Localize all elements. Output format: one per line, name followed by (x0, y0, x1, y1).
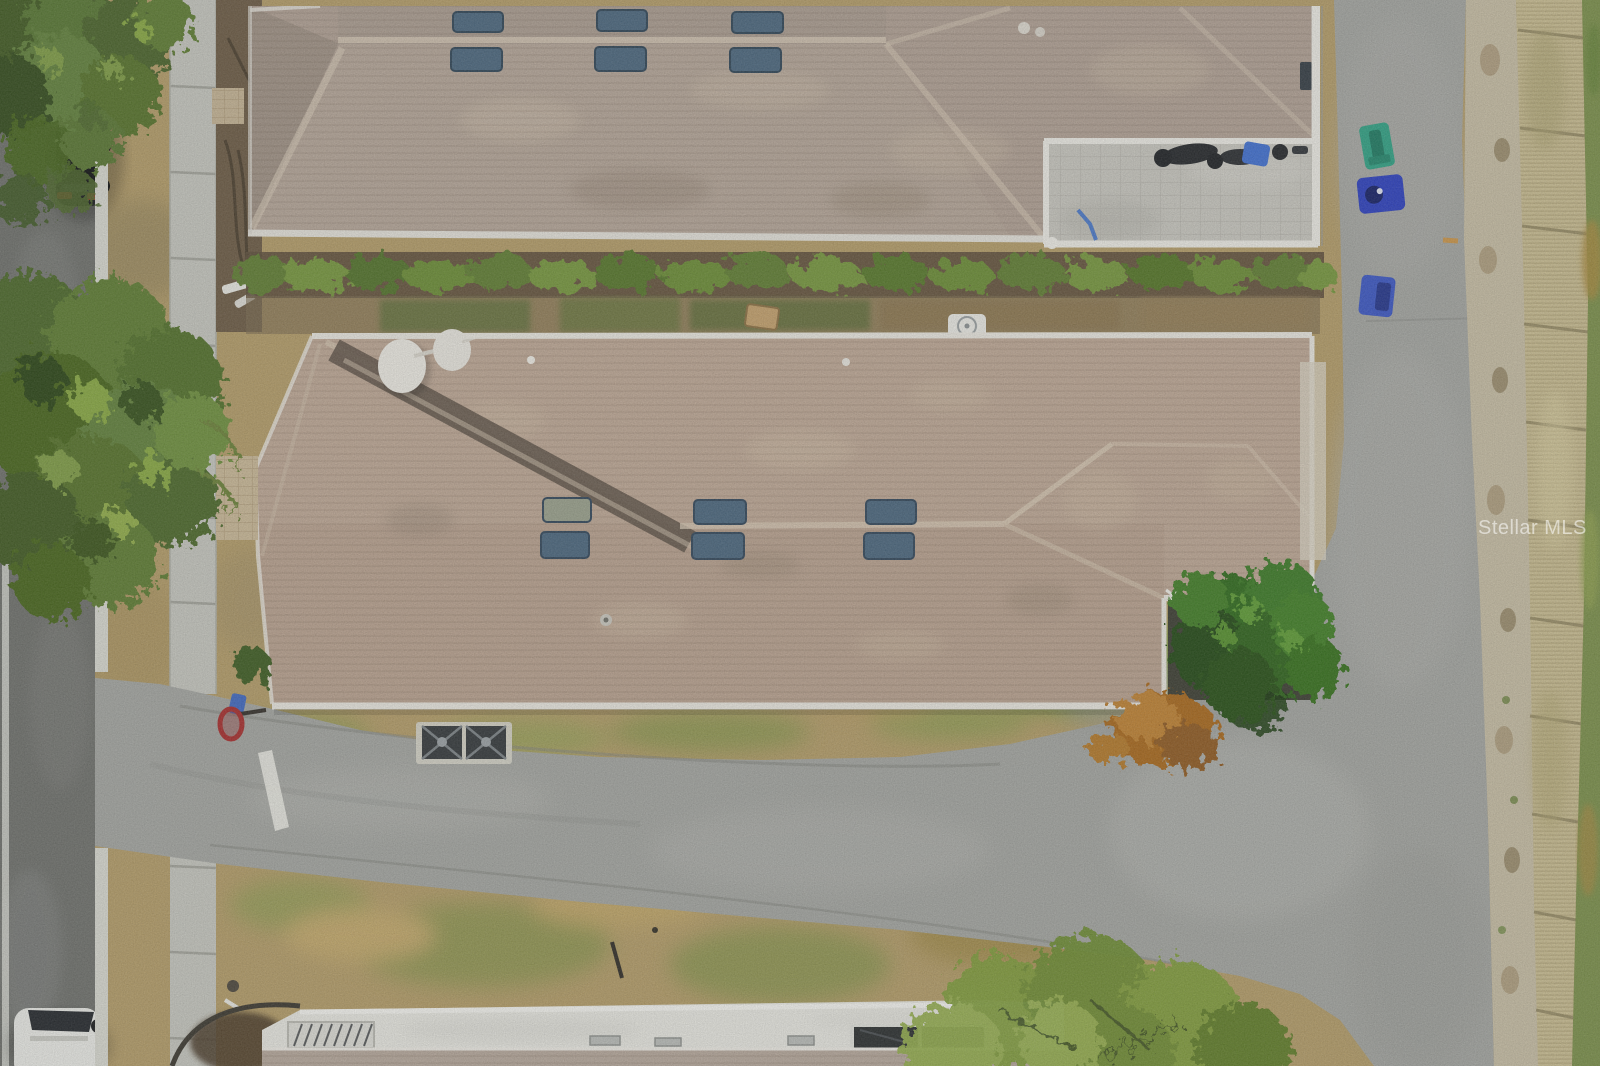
photo-grain-light (0, 0, 1600, 1066)
aerial-photo: Stellar MLS (0, 0, 1600, 1066)
aerial-photo-stage: Stellar MLS (0, 0, 1600, 1066)
watermark: Stellar MLS (1478, 517, 1587, 539)
